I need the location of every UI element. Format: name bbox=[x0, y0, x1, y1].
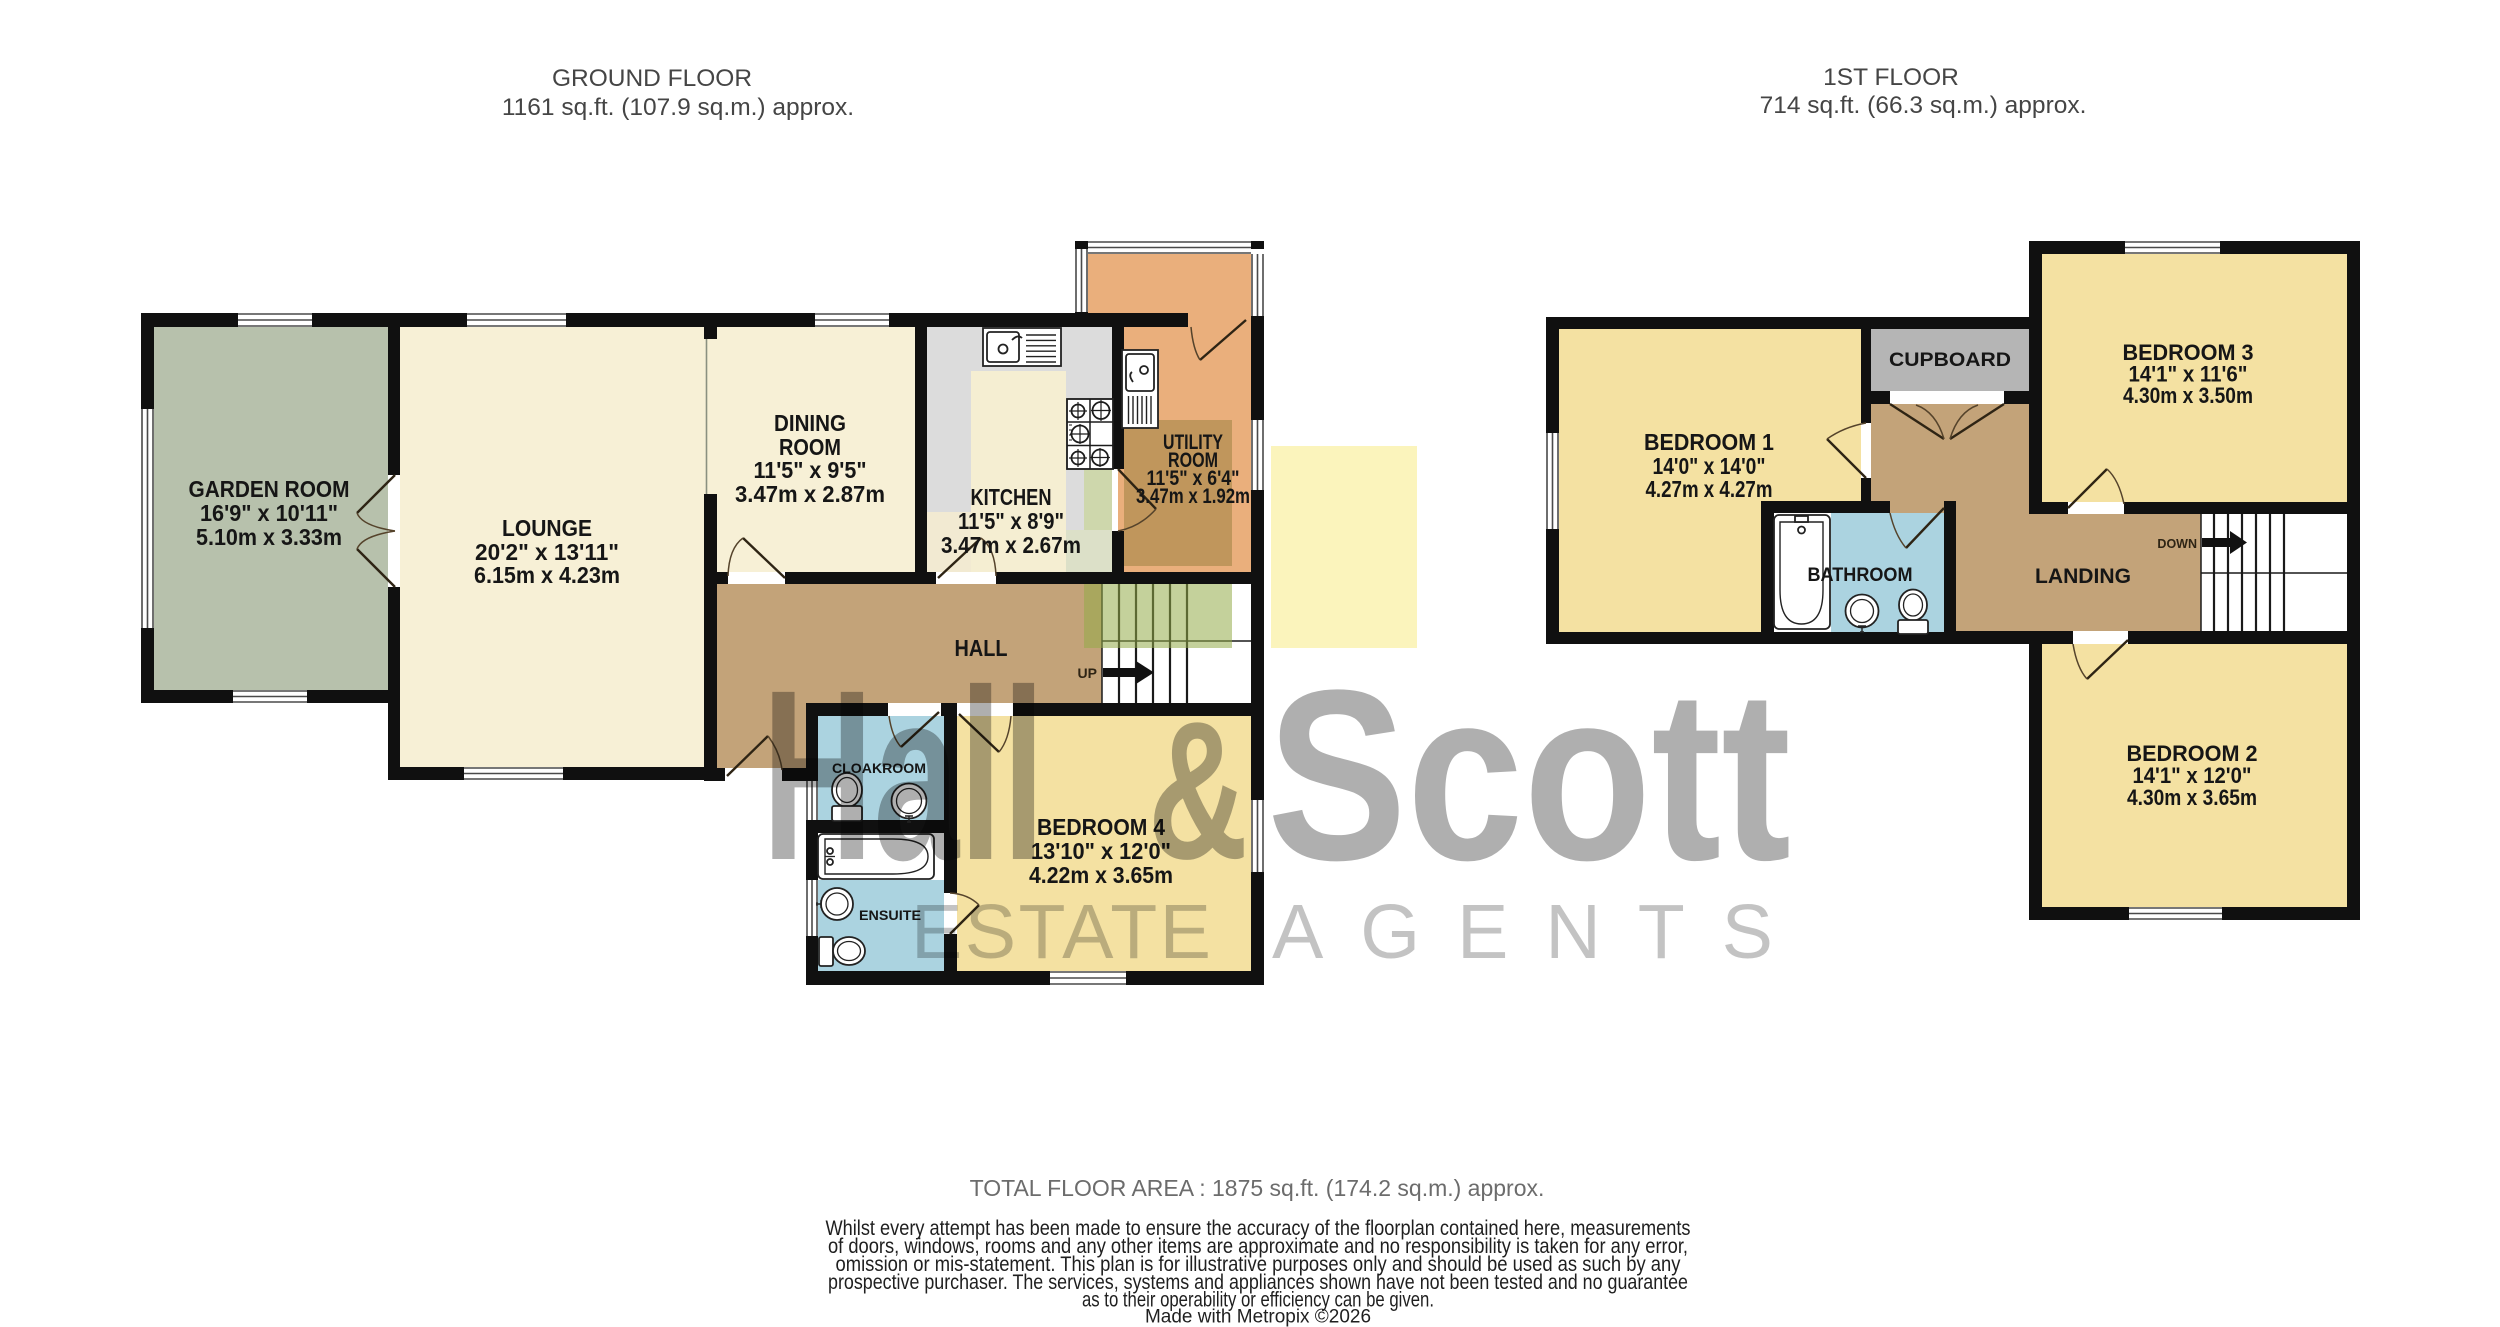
svg-text:11'5" x 9'5": 11'5" x 9'5" bbox=[754, 457, 867, 483]
svg-text:4.27m x 4.27m: 4.27m x 4.27m bbox=[1646, 476, 1773, 502]
svg-text:GROUND FLOOR: GROUND FLOOR bbox=[552, 65, 752, 92]
svg-text:3.47m x 2.87m: 3.47m x 2.87m bbox=[735, 481, 885, 507]
svg-text:714 sq.ft. (66.3 sq.m.) approx: 714 sq.ft. (66.3 sq.m.) approx. bbox=[1760, 92, 2087, 119]
svg-text:4.30m x 3.50m: 4.30m x 3.50m bbox=[2123, 383, 2253, 408]
svg-text:4.30m x 3.65m: 4.30m x 3.65m bbox=[2127, 785, 2257, 810]
svg-text:&: & bbox=[1148, 681, 1248, 900]
svg-text:BEDROOM 4: BEDROOM 4 bbox=[1037, 814, 1165, 840]
svg-text:DOWN: DOWN bbox=[2157, 537, 2197, 551]
svg-text:5.10m x 3.33m: 5.10m x 3.33m bbox=[196, 524, 342, 550]
svg-text:LOUNGE: LOUNGE bbox=[502, 515, 592, 541]
svg-text:1ST FLOOR: 1ST FLOOR bbox=[1823, 64, 1959, 91]
svg-text:3.47m x 1.92m: 3.47m x 1.92m bbox=[1136, 485, 1250, 508]
svg-text:KITCHEN: KITCHEN bbox=[971, 484, 1052, 510]
svg-text:Made with Metropix ©2026: Made with Metropix ©2026 bbox=[1145, 1307, 1371, 1327]
svg-text:BEDROOM 1: BEDROOM 1 bbox=[1644, 429, 1774, 455]
svg-text:LANDING: LANDING bbox=[2035, 564, 2131, 588]
svg-text:1161 sq.ft. (107.9 sq.m.) appr: 1161 sq.ft. (107.9 sq.m.) approx. bbox=[502, 94, 854, 121]
svg-text:CUPBOARD: CUPBOARD bbox=[1889, 349, 2011, 371]
svg-text:TOTAL FLOOR AREA : 1875 sq.ft.: TOTAL FLOOR AREA : 1875 sq.ft. (174.2 sq… bbox=[970, 1175, 1545, 1201]
svg-text:GARDEN ROOM: GARDEN ROOM bbox=[189, 476, 350, 502]
svg-text:Hall: Hall bbox=[762, 640, 1045, 911]
svg-text:3.47m x 2.67m: 3.47m x 2.67m bbox=[941, 532, 1081, 558]
svg-text:Scott: Scott bbox=[1267, 640, 1791, 911]
svg-text:UP: UP bbox=[1078, 665, 1097, 681]
svg-text:6.15m x 4.23m: 6.15m x 4.23m bbox=[474, 562, 620, 588]
svg-text:16'9" x 10'11": 16'9" x 10'11" bbox=[200, 500, 338, 526]
svg-text:11'5" x 8'9": 11'5" x 8'9" bbox=[958, 508, 1064, 534]
svg-text:DINING: DINING bbox=[774, 410, 846, 436]
svg-text:BATHROOM: BATHROOM bbox=[1808, 565, 1913, 586]
